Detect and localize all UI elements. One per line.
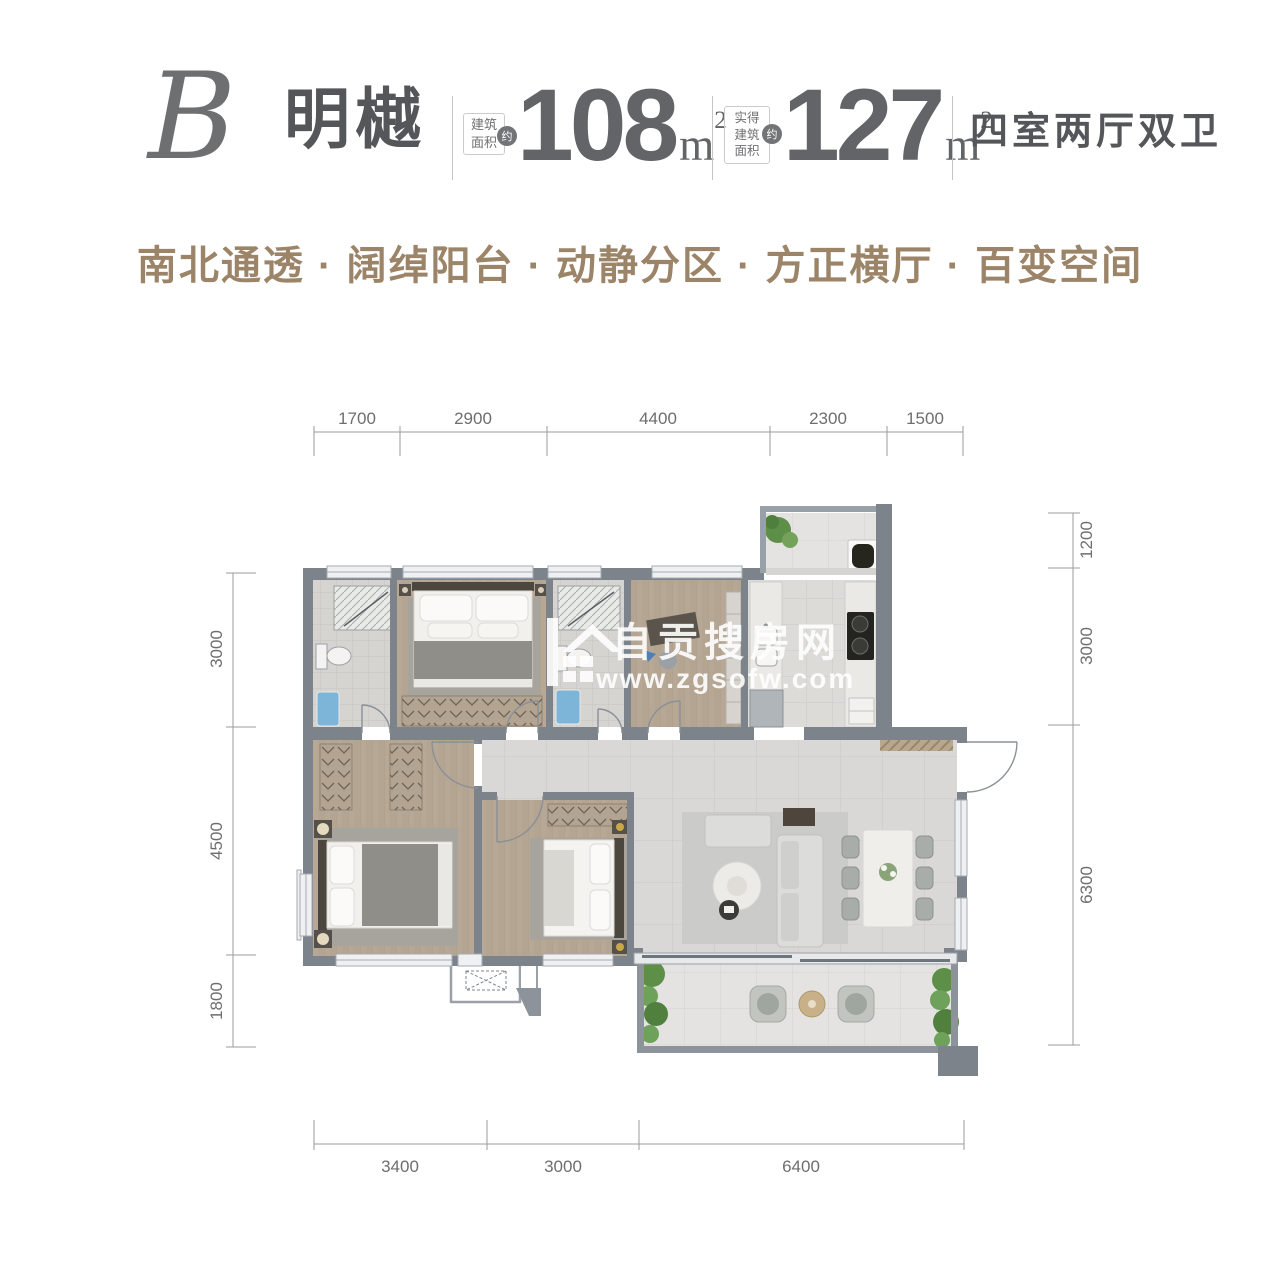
fridge — [750, 690, 783, 727]
wall-interior — [390, 568, 397, 740]
wall-entry-top — [876, 727, 967, 740]
window-bedroom3-bottom — [543, 954, 613, 966]
wall-balcony-left — [637, 962, 644, 1052]
watermark-site-name: 自贡搜房网 — [612, 621, 842, 665]
window-master-bottom — [458, 954, 482, 966]
svg-text:3400: 3400 — [381, 1157, 419, 1176]
wall-corridor — [622, 727, 648, 740]
dimension-top: 1700 2900 4400 2300 1500 — [314, 409, 963, 456]
equipment-platform — [451, 963, 541, 1016]
svg-text:3000: 3000 — [207, 630, 226, 668]
window-master-bottom — [336, 954, 452, 966]
dimension-right: 1200 3000 6300 — [1048, 513, 1096, 1045]
approx-badge: 约 — [497, 126, 517, 146]
wall-bedroom3-top — [543, 792, 634, 800]
wall-stub-bottom-right — [938, 1046, 978, 1076]
dimension-left: 3000 4500 1800 — [207, 573, 256, 1047]
bed-bedroom3 — [530, 820, 630, 954]
balcony-floor — [644, 962, 951, 1046]
nook-sill — [766, 568, 876, 575]
wall-corridor — [538, 727, 598, 740]
wall-corridor — [804, 727, 876, 740]
wardrobe-bedroom2 — [402, 696, 542, 726]
svg-text:6400: 6400 — [782, 1157, 820, 1176]
window-bedroom2 — [403, 566, 533, 578]
svg-text:6300: 6300 — [1077, 866, 1096, 904]
floorplan-svg: 1700 2900 4400 2300 1500 3400 3000 6400 … — [0, 0, 1280, 1280]
wall-nook-top — [760, 506, 880, 512]
wall-master-right — [474, 786, 482, 958]
wall-balcony-bottom — [637, 1046, 958, 1053]
svg-text:2300: 2300 — [809, 409, 847, 428]
wall-nook-left — [760, 508, 766, 573]
wall-corridor — [303, 727, 362, 740]
wall-balcony-right — [951, 962, 958, 1053]
svg-text:1800: 1800 — [207, 982, 226, 1020]
svg-text:3000: 3000 — [544, 1157, 582, 1176]
wall-bedroom3-top — [482, 792, 497, 800]
wall-kitchen-right — [876, 504, 892, 740]
svg-text:1200: 1200 — [1077, 521, 1096, 559]
shower-bathroom2 — [558, 586, 620, 630]
bed-bedroom2 — [399, 582, 547, 702]
watermark-url: www.zgsofw.com — [595, 663, 855, 694]
dining-table — [842, 830, 933, 927]
window-bathroom2 — [548, 566, 601, 578]
window-master-left — [297, 870, 312, 940]
wall-exterior-right — [957, 740, 967, 743]
balcony-lounge-set — [750, 986, 874, 1022]
svg-text:4400: 4400 — [639, 409, 677, 428]
svg-text:2900: 2900 — [454, 409, 492, 428]
bed-master — [314, 820, 458, 948]
door-entry — [967, 742, 1017, 792]
wall-bedroom3-right — [627, 800, 634, 958]
floorplan-page: B 明樾 建筑 面积 约 108 m2 实得 建筑 面积 约 127 m2 四室… — [0, 0, 1280, 1280]
sink-ensuite — [317, 692, 339, 726]
sink-bathroom2 — [556, 690, 580, 724]
svg-text:3000: 3000 — [1077, 627, 1096, 665]
window-ensuite — [327, 566, 391, 578]
svg-text:1700: 1700 — [338, 409, 376, 428]
washing-machine — [848, 540, 878, 572]
svg-text:1500: 1500 — [906, 409, 944, 428]
window-living-right — [955, 800, 967, 876]
dimension-bottom: 3400 3000 6400 — [314, 1120, 964, 1176]
balcony-slider — [634, 953, 957, 964]
svg-text:4500: 4500 — [207, 822, 226, 860]
wall-corridor — [680, 727, 754, 740]
shower-ensuite — [334, 586, 392, 630]
wall-corridor — [390, 727, 506, 740]
window-living-right — [955, 898, 967, 950]
approx-badge: 约 — [762, 124, 782, 144]
kitchen-counter-right — [845, 582, 876, 727]
window-study — [652, 566, 742, 578]
